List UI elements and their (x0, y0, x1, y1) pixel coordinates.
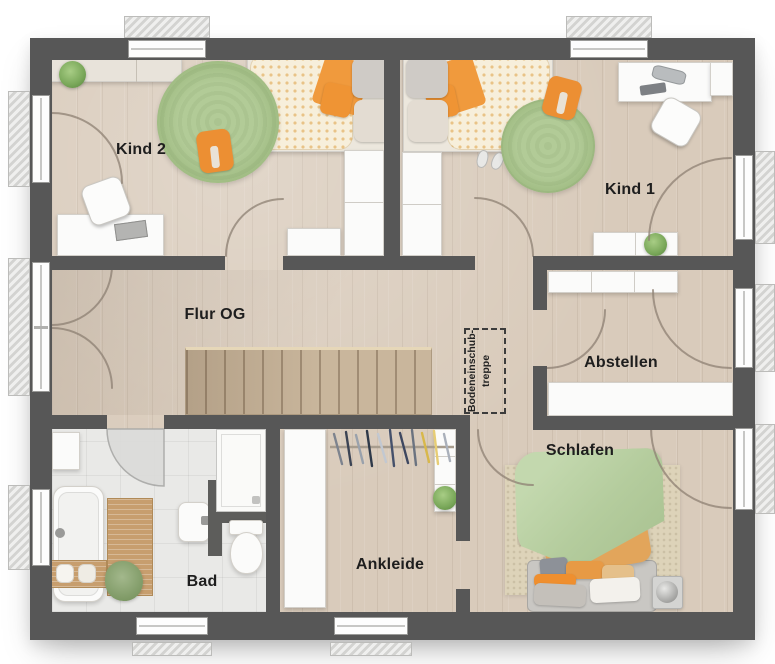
wall-ankleide-schlafen-lower (456, 589, 470, 612)
flur-window-swing-arc-2 (52, 328, 112, 388)
shutter-box (755, 424, 775, 514)
schlafen-door-arc (478, 430, 533, 485)
window-bad-bottom (136, 617, 208, 635)
window-kind2-top (128, 40, 206, 58)
shutter-box (132, 642, 212, 656)
wall-flur-abstellen-upper (533, 270, 547, 310)
room-label-schlafen: Schlafen (546, 442, 614, 460)
window-kind2-left (32, 95, 50, 183)
bad-door-leaf (107, 429, 164, 486)
flur-window-swing-arc-1 (52, 265, 112, 325)
window-schlafen-right (735, 428, 753, 510)
loft-hatch-line1: Bodeneinschub- (465, 329, 479, 413)
window-ankleide-bottom (334, 617, 408, 635)
kind1-window-swing-arc (649, 158, 731, 240)
wall-bad-top (52, 415, 107, 429)
kind2-window-swing-arc (52, 113, 122, 183)
shutter-box (8, 485, 30, 570)
room-label-abstellen: Abstellen (584, 354, 658, 372)
shutter-box (124, 16, 210, 38)
shutter-box (330, 642, 412, 656)
window-kind1-right (735, 155, 753, 240)
room-label-kind1: Kind 1 (605, 181, 655, 199)
shutter-box (755, 151, 775, 244)
schlafen-window-swing-arc (651, 428, 731, 508)
wall-kind1-abstellen (533, 256, 733, 270)
abstellen-window-swing-arc (653, 290, 731, 368)
room-label-kind2: Kind 2 (116, 141, 166, 159)
loft-hatch-annotation-box: Bodeneinschub- treppe (464, 328, 506, 414)
kind1-door-arc (475, 198, 533, 256)
wall-kind2-kind1-flur (283, 256, 475, 270)
wall-flur-bottom (164, 415, 470, 429)
window-bad-left (32, 489, 50, 566)
room-label-ankleide: Ankleide (356, 556, 424, 574)
shutter-box (755, 284, 775, 372)
floor-plan-canvas: Kind 2 Kind 1 Flur OG Abstellen Schlafen… (0, 0, 775, 664)
wall-kind1-kind2-divider (384, 60, 400, 256)
kind2-door-arc (226, 199, 283, 256)
wall-schlafen-top (533, 416, 733, 430)
shutter-box (8, 91, 30, 187)
room-label-bad: Bad (187, 573, 218, 591)
window-abstellen-right (735, 288, 753, 368)
shutter-box (566, 16, 652, 38)
window-flur-left (32, 262, 50, 392)
room-label-flur-og: Flur OG (185, 306, 246, 324)
wall-kind2-flur (52, 256, 225, 270)
wall-ankleide-schlafen-upper (456, 429, 470, 541)
window-kind1-top (570, 40, 648, 58)
loft-hatch-annotation-text: Bodeneinschub- treppe (465, 329, 505, 413)
shutter-box (8, 258, 30, 396)
window-transom (34, 326, 48, 329)
loft-hatch-line2: treppe (479, 329, 493, 413)
wall-bad-ankleide-divider (266, 429, 280, 612)
